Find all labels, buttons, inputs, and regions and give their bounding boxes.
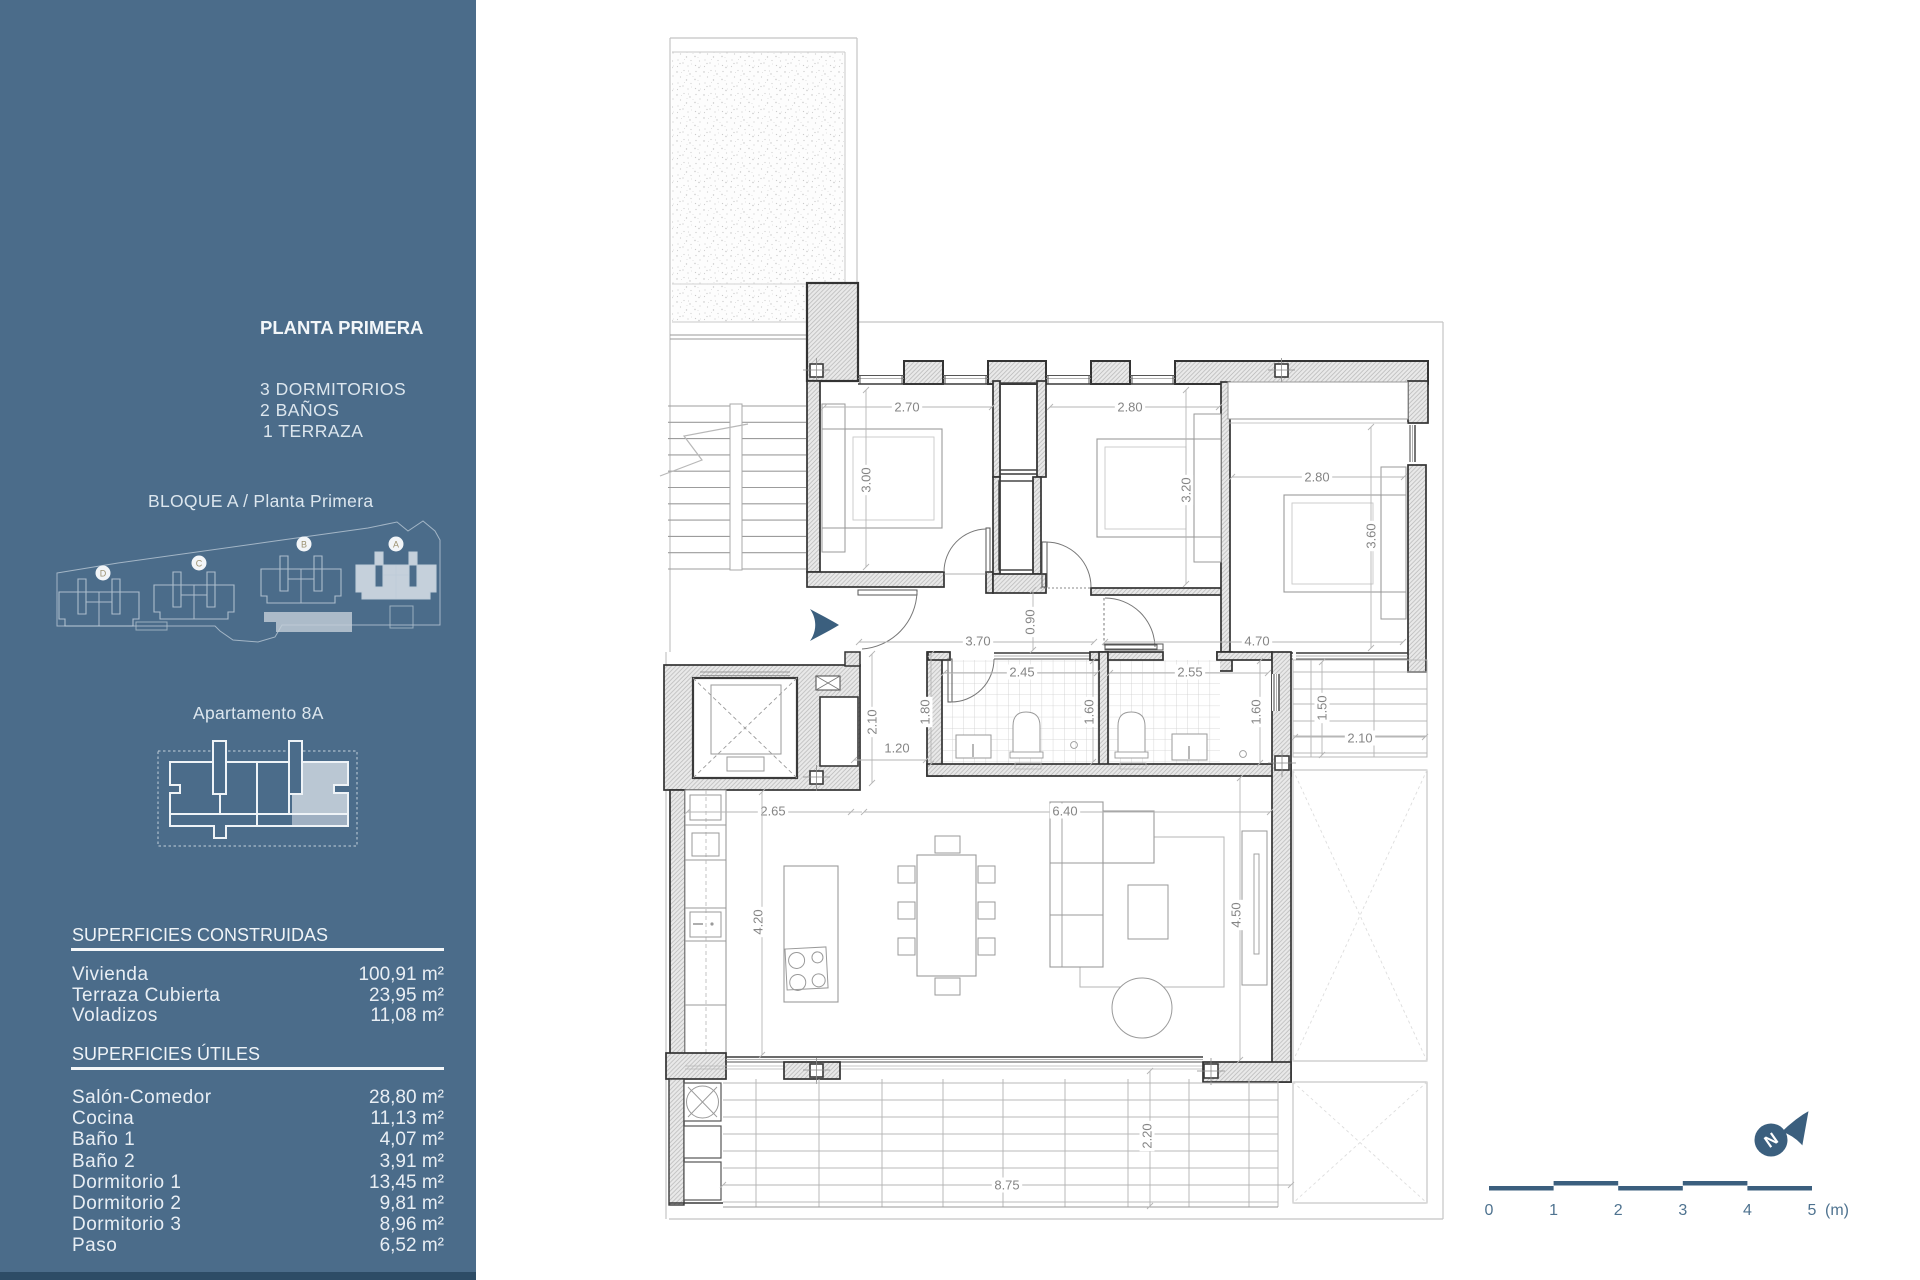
svg-text:1.80: 1.80 [918,699,933,724]
svg-text:4.70: 4.70 [1244,634,1269,649]
svg-text:4: 4 [1743,1202,1752,1219]
svg-text:D: D [100,569,107,579]
svg-text:3.70: 3.70 [965,634,990,649]
svg-text:2.10: 2.10 [1347,731,1372,746]
svg-text:1.20: 1.20 [884,741,909,756]
svg-text:3.60: 3.60 [1364,523,1379,548]
svg-text:6.40: 6.40 [1052,804,1077,819]
svg-text:1.60: 1.60 [1249,699,1264,724]
svg-text:1: 1 [1549,1202,1558,1219]
svg-text:4.50: 4.50 [1229,902,1244,927]
svg-text:0.90: 0.90 [1023,609,1038,634]
svg-text:2: 2 [1614,1202,1623,1219]
svg-text:2.65: 2.65 [760,804,785,819]
svg-text:2.55: 2.55 [1177,665,1202,680]
svg-text:0: 0 [1485,1202,1494,1219]
svg-text:2.20: 2.20 [1140,1123,1155,1148]
svg-text:3.00: 3.00 [859,467,874,492]
svg-text:2.70: 2.70 [894,400,919,415]
svg-text:A: A [393,540,399,550]
svg-text:C: C [196,559,203,569]
svg-text:2.45: 2.45 [1009,665,1034,680]
svg-text:2.80: 2.80 [1117,400,1142,415]
svg-text:5: 5 [1808,1202,1817,1219]
svg-text:4.20: 4.20 [751,909,766,934]
svg-text:8.75: 8.75 [994,1178,1019,1193]
svg-text:1.60: 1.60 [1082,699,1097,724]
svg-text:2.80: 2.80 [1304,470,1329,485]
svg-text:3.20: 3.20 [1179,477,1194,502]
svg-text:3: 3 [1678,1202,1687,1219]
svg-text:2.10: 2.10 [865,709,880,734]
svg-text:(m): (m) [1825,1202,1849,1219]
svg-text:1.50: 1.50 [1315,695,1330,720]
svg-text:B: B [301,540,307,550]
